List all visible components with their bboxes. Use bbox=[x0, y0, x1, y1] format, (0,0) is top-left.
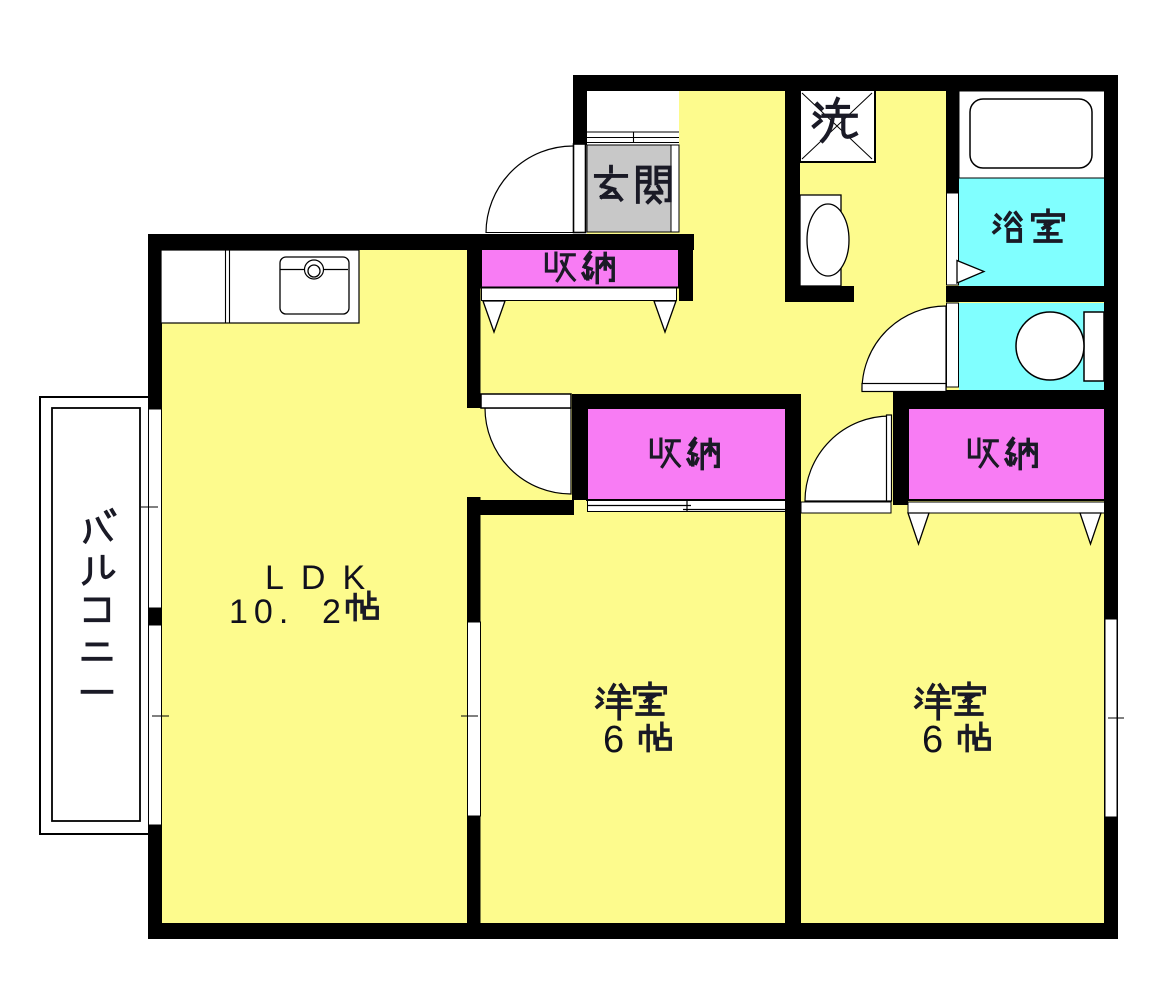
svg-text:10.: 10. bbox=[229, 593, 294, 631]
svg-text:2: 2 bbox=[322, 593, 341, 631]
svg-text:6: 6 bbox=[603, 719, 624, 761]
svg-text:6: 6 bbox=[922, 719, 943, 761]
svg-text:LDK: LDK bbox=[265, 559, 382, 597]
